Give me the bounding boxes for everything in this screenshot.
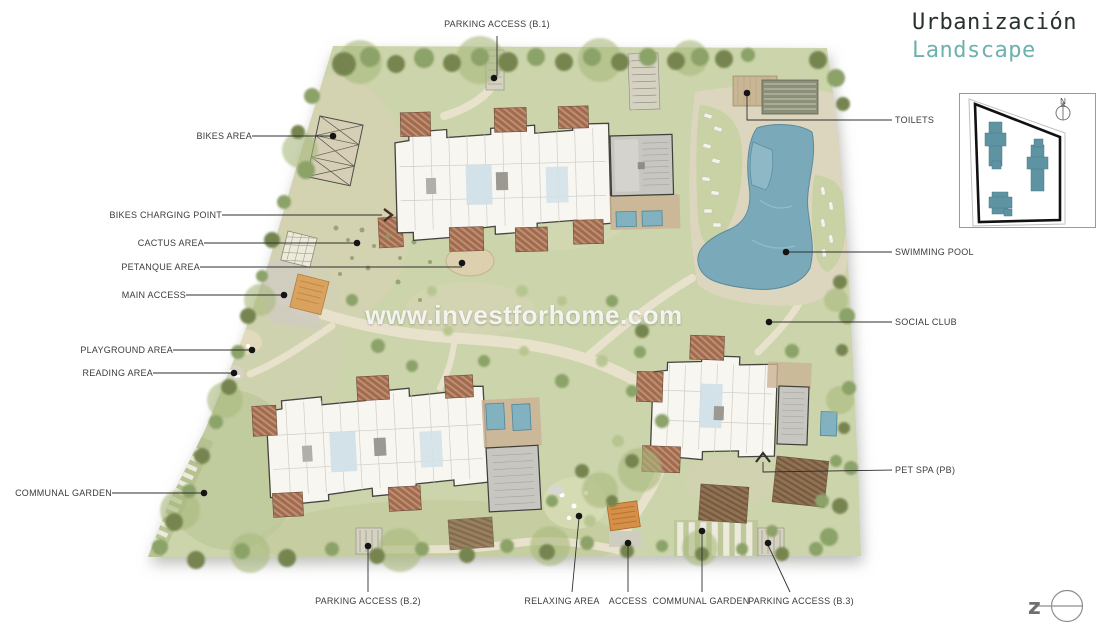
- location-minimap: N: [959, 93, 1096, 228]
- pool-zone: [689, 76, 850, 306]
- plan-label-communal-garden-bottom: COMMUNAL GARDEN: [653, 596, 750, 607]
- plan-label-relaxing-area: RELAXING AREA: [524, 596, 599, 607]
- plan-label-petanque-area: PETANQUE AREA: [121, 262, 200, 273]
- plan-label-main-access: MAIN ACCESS: [122, 290, 186, 301]
- plan-label-social-club: SOCIAL CLUB: [895, 317, 957, 328]
- plan-label-parking-access-b1: PARKING ACCESS (B.1): [444, 19, 550, 30]
- logo-letter: z: [1028, 595, 1041, 620]
- plan-label-toilets: TOILETS: [895, 115, 934, 126]
- plan-label-playground-area: PLAYGROUND AREA: [80, 345, 173, 356]
- access-pavilion: [607, 501, 641, 547]
- plan-label-reading-area: READING AREA: [82, 368, 153, 379]
- plan-label-bikes-area: BIKES AREA: [196, 131, 252, 142]
- building-b1: [394, 105, 612, 255]
- brand-logo: z: [1018, 588, 1110, 626]
- site-plan-page: Urbanización Landscape www.investforhome…: [0, 0, 1110, 626]
- building-b2-annex: [481, 397, 545, 512]
- watermark: www.investforhome.com: [365, 300, 682, 331]
- plan-label-access: ACCESS: [609, 596, 648, 607]
- plan-label-communal-garden-left: COMMUNAL GARDEN: [15, 488, 112, 499]
- logo-circle-icon: [1038, 591, 1083, 622]
- page-title-line2: Landscape: [912, 38, 1036, 63]
- building-b1-annex: [608, 134, 680, 230]
- page-title-line1: Urbanización: [912, 10, 1077, 35]
- plan-label-bikes-charging-point: BIKES CHARGING POINT: [109, 210, 222, 221]
- plan-label-parking-access-b3: PARKING ACCESS (B.3): [748, 596, 854, 607]
- plan-label-pet-spa: PET SPA (PB): [895, 465, 955, 476]
- plan-label-parking-access-b2: PARKING ACCESS (B.2): [315, 596, 421, 607]
- plan-label-swimming-pool: SWIMMING POOL: [895, 247, 974, 258]
- plan-label-cactus-area: CACTUS AREA: [138, 238, 204, 249]
